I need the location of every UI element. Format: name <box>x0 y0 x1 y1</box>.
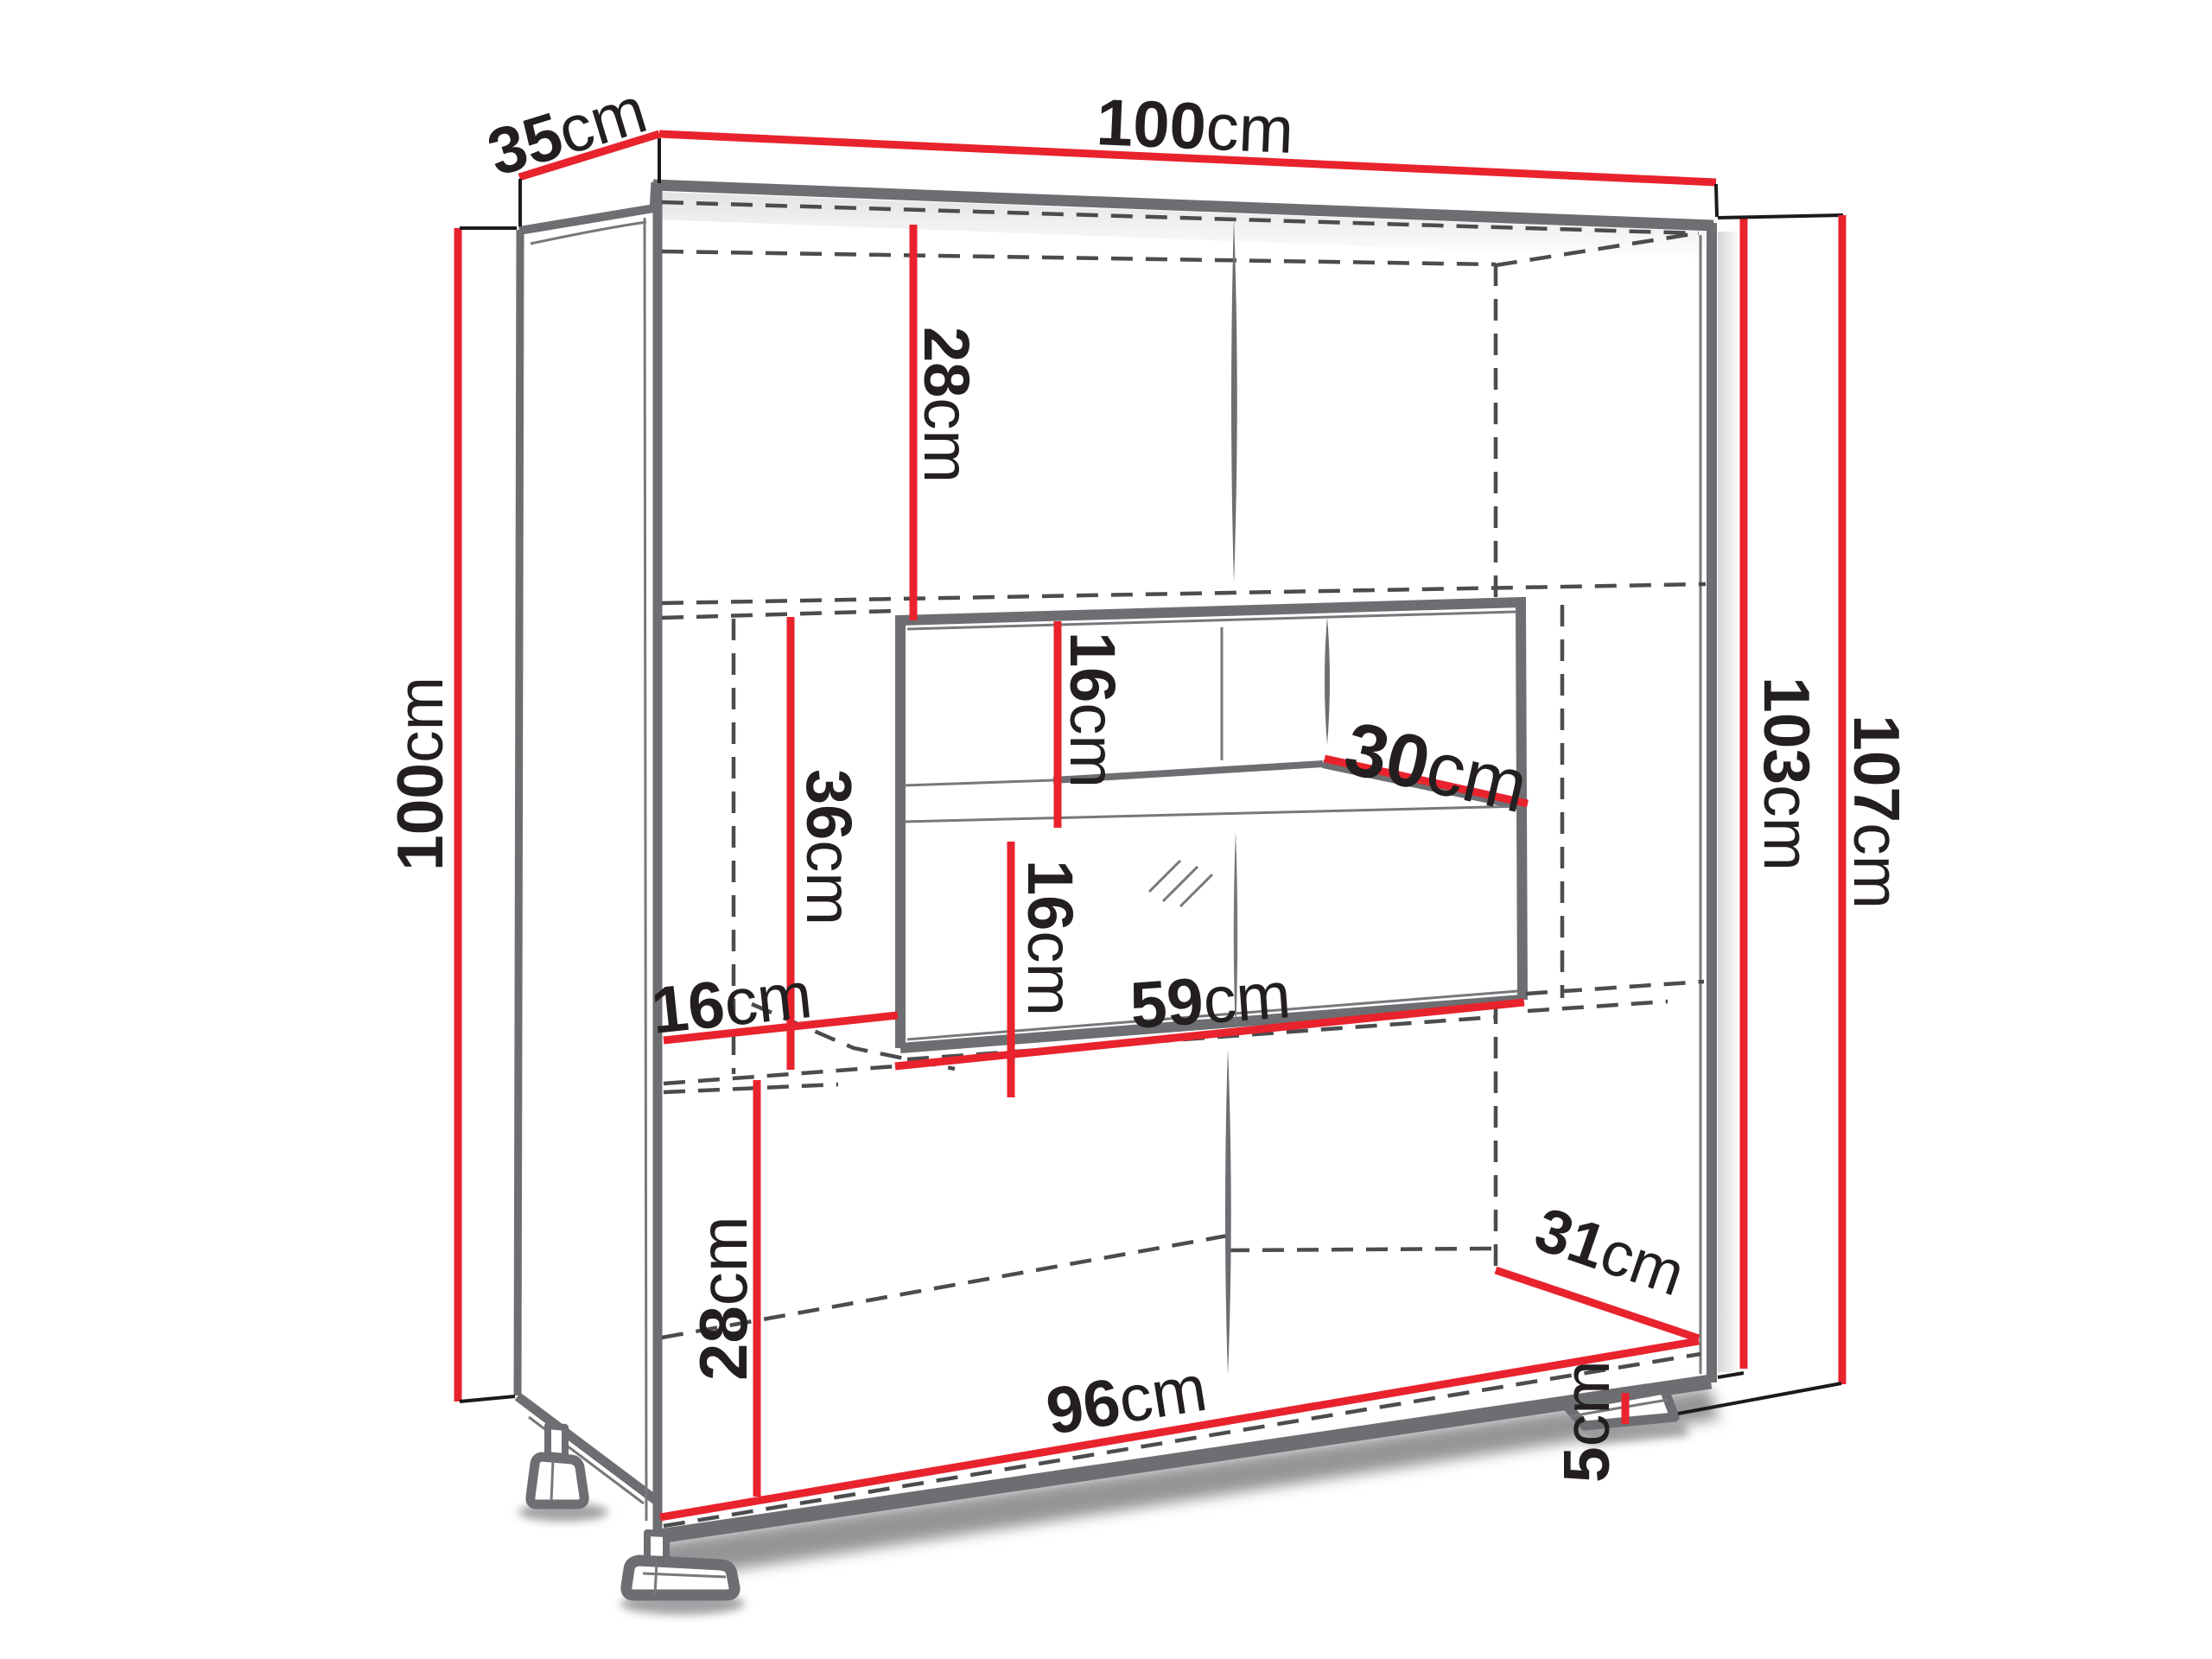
svg-text:16cm: 16cm <box>1057 632 1128 788</box>
svg-text:28cm: 28cm <box>685 1216 761 1381</box>
svg-text:100cm: 100cm <box>384 677 456 871</box>
svg-text:36cm: 36cm <box>793 769 865 925</box>
svg-text:28cm: 28cm <box>911 327 982 483</box>
svg-text:103cm: 103cm <box>1751 677 1823 871</box>
svg-text:59cm: 59cm <box>1128 958 1293 1043</box>
svg-text:5cm: 5cm <box>1550 1360 1623 1483</box>
svg-text:107cm: 107cm <box>1840 715 1913 909</box>
svg-text:16cm: 16cm <box>1014 860 1086 1016</box>
svg-text:100cm: 100cm <box>1095 86 1295 168</box>
